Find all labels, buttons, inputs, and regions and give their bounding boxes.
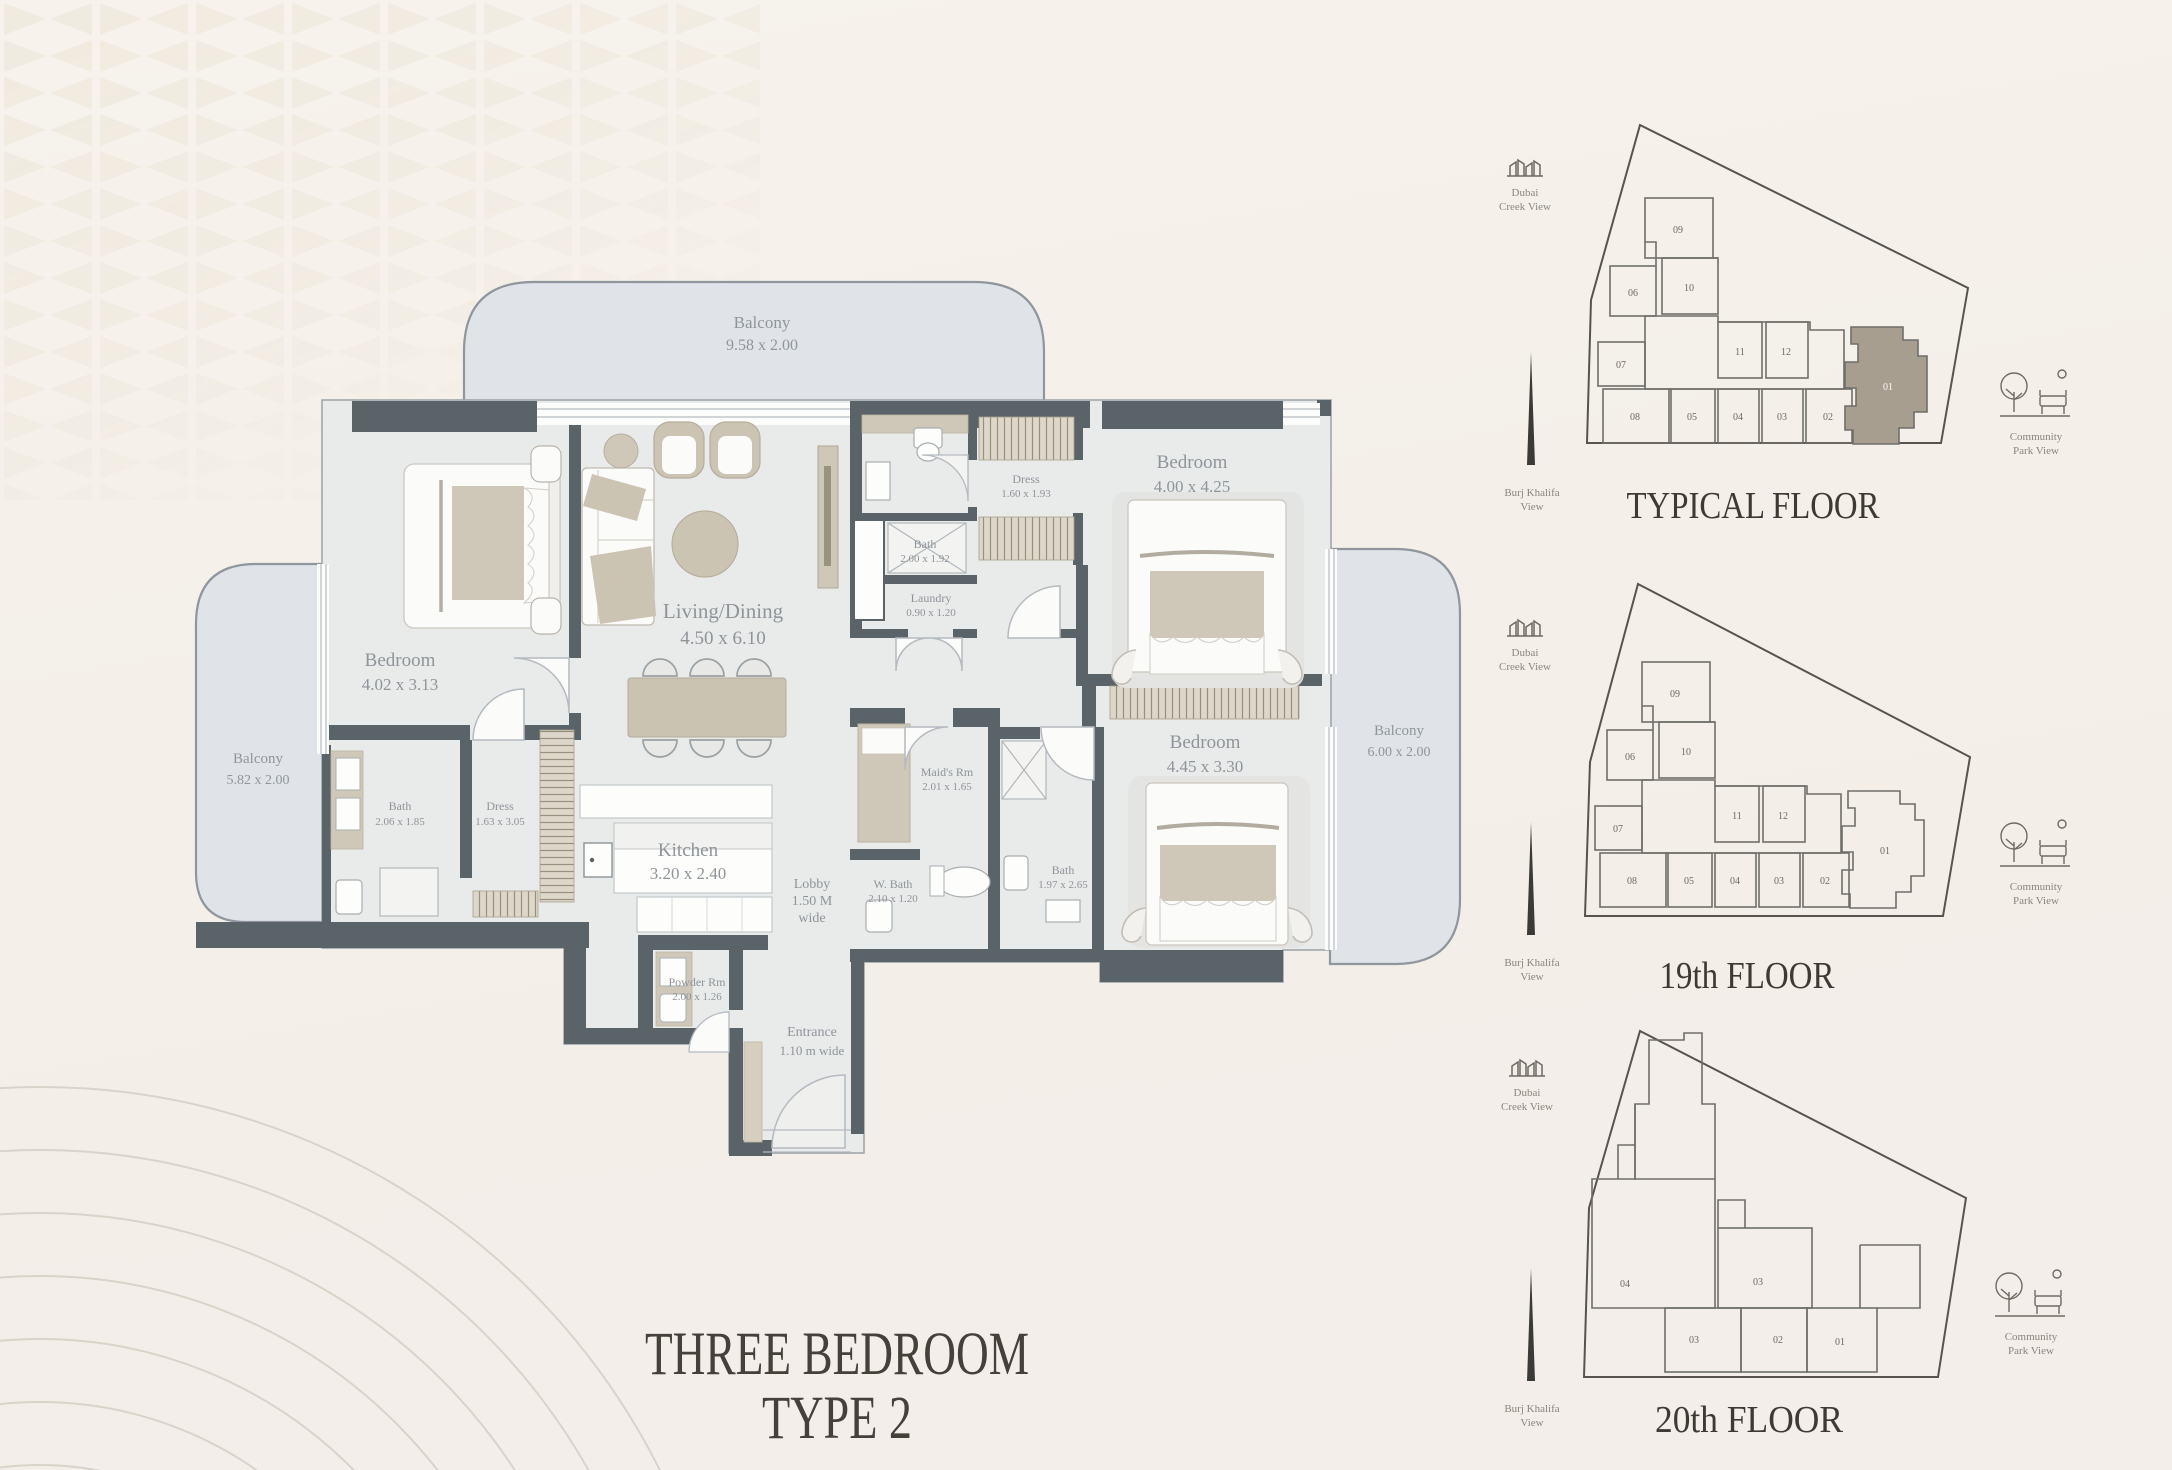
svg-text:Entrance: Entrance xyxy=(787,1025,837,1040)
svg-text:2.06 x 1.85: 2.06 x 1.85 xyxy=(375,816,425,828)
svg-text:Dress: Dress xyxy=(1012,472,1040,486)
svg-text:03: 03 xyxy=(1753,1277,1763,1288)
svg-text:04: 04 xyxy=(1620,1279,1630,1290)
svg-text:Powder Rm: Powder Rm xyxy=(669,975,727,989)
svg-text:Community: Community xyxy=(2005,1331,2058,1343)
svg-text:03: 03 xyxy=(1777,412,1787,423)
svg-text:Creek View: Creek View xyxy=(1499,661,1551,673)
svg-text:02: 02 xyxy=(1773,1335,1783,1346)
svg-text:1.97 x 2.65: 1.97 x 2.65 xyxy=(1038,879,1088,891)
svg-text:02: 02 xyxy=(1820,876,1830,887)
svg-text:wide: wide xyxy=(798,911,825,926)
svg-text:4.02 x 3.13: 4.02 x 3.13 xyxy=(362,675,439,694)
svg-text:19th FLOOR: 19th FLOOR xyxy=(1660,955,1836,997)
svg-text:06: 06 xyxy=(1625,752,1635,763)
svg-text:Community: Community xyxy=(2010,431,2063,443)
svg-text:Bath: Bath xyxy=(1052,863,1075,877)
svg-text:Burj Khalifa: Burj Khalifa xyxy=(1504,957,1559,969)
svg-text:Balcony: Balcony xyxy=(734,313,791,332)
svg-text:Dubai: Dubai xyxy=(1512,187,1539,199)
svg-text:06: 06 xyxy=(1628,288,1638,299)
svg-text:Bedroom: Bedroom xyxy=(1170,732,1241,753)
svg-text:W. Bath: W. Bath xyxy=(874,877,913,891)
svg-text:THREE BEDROOM: THREE BEDROOM xyxy=(645,1321,1029,1388)
svg-text:03: 03 xyxy=(1689,1335,1699,1346)
svg-text:10: 10 xyxy=(1681,747,1691,758)
svg-text:Community: Community xyxy=(2010,881,2063,893)
svg-text:Burj Khalifa: Burj Khalifa xyxy=(1504,1403,1559,1415)
svg-text:05: 05 xyxy=(1684,876,1694,887)
svg-text:09: 09 xyxy=(1670,689,1680,700)
svg-text:09: 09 xyxy=(1673,225,1683,236)
svg-text:Balcony: Balcony xyxy=(1374,723,1424,739)
svg-text:Kitchen: Kitchen xyxy=(658,840,719,861)
svg-text:Bedroom: Bedroom xyxy=(1157,452,1228,473)
svg-text:Dress: Dress xyxy=(486,799,514,813)
svg-text:Burj Khalifa: Burj Khalifa xyxy=(1504,487,1559,499)
svg-text:4.45 x 3.30: 4.45 x 3.30 xyxy=(1167,757,1244,776)
svg-text:TYPICAL FLOOR: TYPICAL FLOOR xyxy=(1627,485,1881,527)
svg-text:1.50 M: 1.50 M xyxy=(792,894,833,909)
svg-text:TYPE 2: TYPE 2 xyxy=(762,1385,912,1452)
svg-text:1.60 x 1.93: 1.60 x 1.93 xyxy=(1001,488,1051,500)
svg-text:04: 04 xyxy=(1733,412,1743,423)
svg-text:08: 08 xyxy=(1627,876,1637,887)
svg-text:Creek View: Creek View xyxy=(1499,201,1551,213)
svg-text:Bedroom: Bedroom xyxy=(365,650,436,671)
svg-text:Dubai: Dubai xyxy=(1514,1087,1541,1099)
svg-text:02: 02 xyxy=(1823,412,1833,423)
svg-text:6.00 x 2.00: 6.00 x 2.00 xyxy=(1368,745,1431,760)
svg-text:4.50 x 6.10: 4.50 x 6.10 xyxy=(680,628,766,649)
svg-text:Park View: Park View xyxy=(2013,895,2059,907)
svg-text:3.20 x 2.40: 3.20 x 2.40 xyxy=(650,864,727,883)
svg-text:5.82 x 2.00: 5.82 x 2.00 xyxy=(227,773,290,788)
svg-text:View: View xyxy=(1520,971,1543,983)
svg-text:12: 12 xyxy=(1781,347,1791,358)
svg-text:05: 05 xyxy=(1687,412,1697,423)
svg-text:9.58 x 2.00: 9.58 x 2.00 xyxy=(726,337,798,354)
svg-text:Park View: Park View xyxy=(2013,445,2059,457)
svg-text:03: 03 xyxy=(1774,876,1784,887)
svg-text:11: 11 xyxy=(1735,347,1745,358)
svg-text:0.90 x 1.20: 0.90 x 1.20 xyxy=(906,607,956,619)
svg-text:12: 12 xyxy=(1778,811,1788,822)
svg-text:Balcony: Balcony xyxy=(233,751,283,767)
svg-text:04: 04 xyxy=(1730,876,1740,887)
svg-text:Bath: Bath xyxy=(389,799,412,813)
svg-text:08: 08 xyxy=(1630,412,1640,423)
svg-text:20th FLOOR: 20th FLOOR xyxy=(1655,1399,1844,1441)
svg-text:4.00 x 4.25: 4.00 x 4.25 xyxy=(1154,477,1231,496)
svg-text:01: 01 xyxy=(1880,846,1890,857)
svg-text:Bath: Bath xyxy=(914,537,937,551)
svg-text:Laundry: Laundry xyxy=(911,591,952,605)
svg-text:View: View xyxy=(1520,1417,1543,1429)
svg-text:View: View xyxy=(1520,501,1543,513)
svg-text:1.63 x 3.05: 1.63 x 3.05 xyxy=(475,816,525,828)
svg-text:Maid's Rm: Maid's Rm xyxy=(921,765,974,779)
svg-text:01: 01 xyxy=(1883,382,1893,393)
svg-text:10: 10 xyxy=(1684,283,1694,294)
svg-text:2.00 x 1.92: 2.00 x 1.92 xyxy=(900,553,950,565)
svg-text:07: 07 xyxy=(1613,824,1623,835)
svg-text:Dubai: Dubai xyxy=(1512,647,1539,659)
svg-text:2.00 x 1.26: 2.00 x 1.26 xyxy=(672,991,722,1003)
svg-text:1.10 m wide: 1.10 m wide xyxy=(780,1043,845,1058)
svg-text:01: 01 xyxy=(1835,1337,1845,1348)
svg-text:Lobby: Lobby xyxy=(794,877,831,892)
svg-text:11: 11 xyxy=(1732,811,1742,822)
svg-text:Living/Dining: Living/Dining xyxy=(663,599,784,623)
svg-text:07: 07 xyxy=(1616,360,1626,371)
svg-text:Park View: Park View xyxy=(2008,1345,2054,1357)
svg-text:2.10 x 1.20: 2.10 x 1.20 xyxy=(868,893,918,905)
svg-text:Creek View: Creek View xyxy=(1501,1101,1553,1113)
svg-text:2.01 x 1.65: 2.01 x 1.65 xyxy=(922,781,972,793)
